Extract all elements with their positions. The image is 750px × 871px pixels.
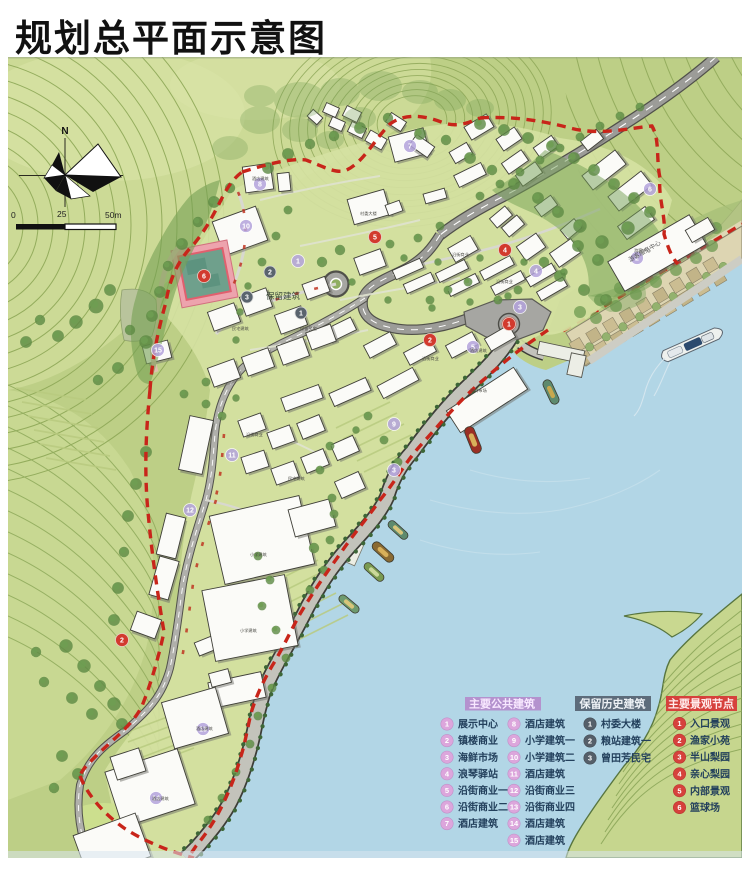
svg-text:内部景观: 内部景观 xyxy=(690,784,730,797)
svg-text:1: 1 xyxy=(445,720,449,729)
svg-text:小学建筑: 小学建筑 xyxy=(250,551,268,558)
svg-text:小学建筑二: 小学建筑二 xyxy=(524,751,575,764)
svg-text:10: 10 xyxy=(242,224,250,231)
svg-text:1: 1 xyxy=(507,322,511,329)
svg-text:5: 5 xyxy=(677,786,681,795)
svg-text:浪琴驿站: 浪琴驿站 xyxy=(458,767,498,780)
svg-text:5: 5 xyxy=(373,235,377,242)
svg-text:沿街商业三: 沿街商业三 xyxy=(525,784,575,797)
svg-text:酒店建筑: 酒店建筑 xyxy=(525,767,565,780)
svg-text:2: 2 xyxy=(268,270,272,277)
svg-text:酒店建筑: 酒店建筑 xyxy=(470,347,488,354)
svg-text:7: 7 xyxy=(408,144,412,151)
svg-text:12: 12 xyxy=(510,786,518,795)
svg-text:1: 1 xyxy=(299,311,303,318)
svg-text:小学建筑一: 小学建筑一 xyxy=(524,734,575,747)
svg-text:沿街商业: 沿街商业 xyxy=(496,278,513,285)
svg-text:9: 9 xyxy=(512,736,516,745)
svg-text:50m: 50m xyxy=(105,210,122,220)
svg-text:11: 11 xyxy=(228,453,236,460)
svg-text:4: 4 xyxy=(503,248,507,255)
svg-text:6: 6 xyxy=(202,274,206,281)
svg-text:酒店建筑: 酒店建筑 xyxy=(196,725,214,732)
svg-text:6: 6 xyxy=(648,187,652,194)
svg-text:村委大楼: 村委大楼 xyxy=(601,718,641,731)
svg-text:15: 15 xyxy=(154,348,162,355)
svg-text:沿街商业: 沿街商业 xyxy=(452,251,469,258)
svg-text:保留建筑: 保留建筑 xyxy=(266,291,301,301)
svg-text:10: 10 xyxy=(510,753,518,762)
svg-text:3: 3 xyxy=(392,468,396,475)
svg-text:展示中心: 展示中心 xyxy=(458,718,498,731)
svg-text:酒店建筑: 酒店建筑 xyxy=(525,718,565,731)
svg-text:海鲜市场: 海鲜市场 xyxy=(458,751,498,764)
svg-text:12: 12 xyxy=(186,508,194,515)
svg-text:1: 1 xyxy=(677,719,681,728)
svg-text:6: 6 xyxy=(677,803,681,812)
svg-text:8: 8 xyxy=(258,182,262,189)
svg-text:沿街商业: 沿街商业 xyxy=(422,355,439,362)
svg-text:N: N xyxy=(61,126,68,137)
svg-text:酒店建筑: 酒店建筑 xyxy=(458,817,498,830)
svg-text:入口景观: 入口景观 xyxy=(690,718,730,730)
svg-text:海鲜市场: 海鲜市场 xyxy=(470,387,487,394)
svg-text:保留民宅: 保留民宅 xyxy=(300,325,317,332)
svg-text:曾田芳民宅: 曾田芳民宅 xyxy=(601,752,651,765)
svg-text:2: 2 xyxy=(445,736,449,745)
svg-text:沿街商业四: 沿街商业四 xyxy=(525,801,575,814)
svg-text:酒店建筑: 酒店建筑 xyxy=(152,795,170,802)
svg-text:4: 4 xyxy=(534,269,538,276)
svg-text:15: 15 xyxy=(510,836,518,845)
svg-text:保留历史建筑: 保留历史建筑 xyxy=(579,697,646,711)
svg-text:篮球场: 篮球场 xyxy=(689,801,720,814)
svg-text:6: 6 xyxy=(445,803,449,812)
svg-text:3: 3 xyxy=(588,754,592,763)
svg-text:7: 7 xyxy=(445,819,449,828)
svg-text:粮站建筑一: 粮站建筑一 xyxy=(601,735,651,748)
svg-text:村委大楼: 村委大楼 xyxy=(360,210,377,217)
svg-text:13: 13 xyxy=(510,803,518,812)
svg-text:民宅建筑: 民宅建筑 xyxy=(288,475,306,482)
svg-text:沿街商业二: 沿街商业二 xyxy=(458,801,508,814)
svg-text:2: 2 xyxy=(428,338,432,345)
svg-text:3: 3 xyxy=(245,295,249,302)
svg-text:亲心梨园: 亲心梨园 xyxy=(690,768,730,781)
svg-text:1: 1 xyxy=(588,720,592,729)
svg-text:1: 1 xyxy=(296,259,300,266)
svg-text:2: 2 xyxy=(588,737,592,746)
svg-text:酒店建筑: 酒店建筑 xyxy=(525,817,565,830)
svg-text:3: 3 xyxy=(445,753,449,762)
svg-text:半山梨园: 半山梨园 xyxy=(690,751,730,764)
svg-text:渔家小苑: 渔家小苑 xyxy=(690,734,730,747)
svg-text:2: 2 xyxy=(120,638,124,645)
svg-text:11: 11 xyxy=(510,769,518,778)
svg-text:镇楼商业: 镇楼商业 xyxy=(458,734,498,747)
svg-text:3: 3 xyxy=(518,305,522,312)
svg-text:0: 0 xyxy=(11,210,16,220)
svg-text:8: 8 xyxy=(512,720,516,729)
svg-text:主要公共建筑: 主要公共建筑 xyxy=(469,697,535,711)
svg-text:酒店建筑: 酒店建筑 xyxy=(252,175,270,182)
svg-text:小学建筑: 小学建筑 xyxy=(240,627,258,634)
svg-text:民宅建筑: 民宅建筑 xyxy=(232,325,250,332)
svg-text:沿街商业一: 沿街商业一 xyxy=(458,784,508,797)
svg-text:3: 3 xyxy=(677,753,681,762)
svg-text:2: 2 xyxy=(677,736,681,745)
svg-text:5: 5 xyxy=(445,786,449,795)
svg-text:9: 9 xyxy=(392,422,396,429)
svg-text:主要景观节点: 主要景观节点 xyxy=(668,697,734,711)
svg-text:酒店建筑: 酒店建筑 xyxy=(525,834,565,847)
svg-text:25: 25 xyxy=(57,209,67,219)
svg-text:沿街商业: 沿街商业 xyxy=(246,431,263,438)
svg-text:14: 14 xyxy=(510,819,519,828)
